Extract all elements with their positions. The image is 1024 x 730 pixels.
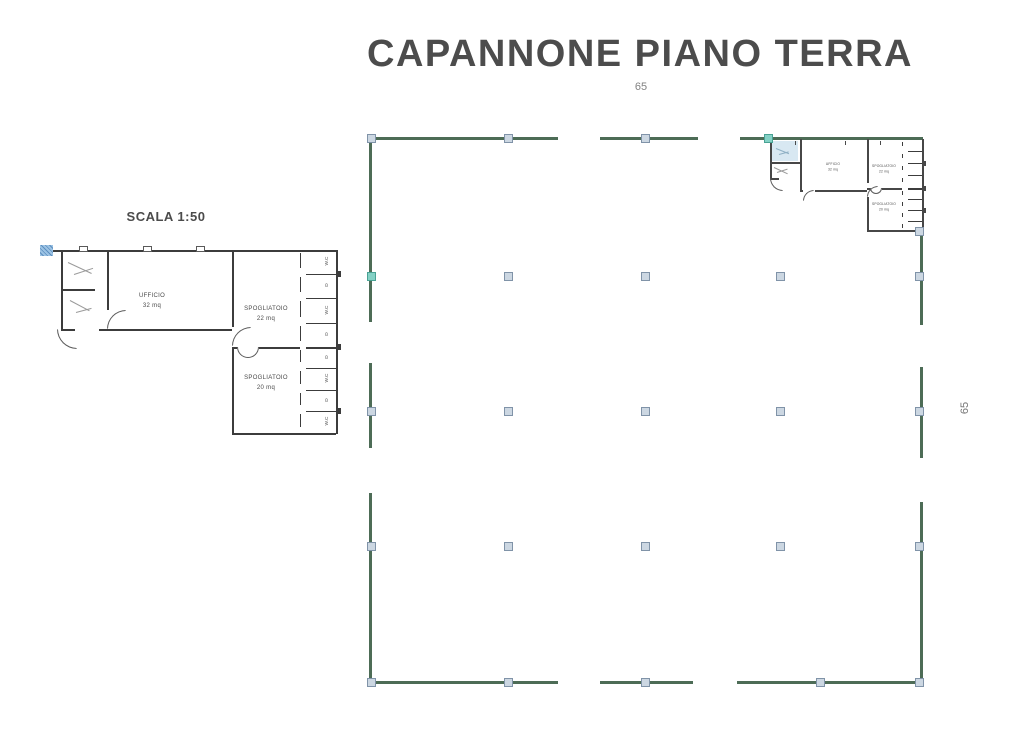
wc-stall-divider [908, 151, 922, 152]
door-swing-arc [57, 329, 77, 349]
wc-stall-door-wall [300, 253, 301, 268]
window-marker [196, 246, 205, 252]
warehouse-wall-segment [369, 681, 558, 684]
annex-wall-segment [867, 139, 869, 183]
annex-label-spogliatoio-20: SPOGLIATOIO 20 mq [868, 202, 901, 213]
wc-stall-divider [306, 368, 336, 369]
column-marker [915, 678, 924, 687]
room-label-spogliatoio-20: SPOGLIATOIO 20 mq [231, 373, 301, 393]
column-marker [367, 134, 376, 143]
column-marker [915, 227, 924, 236]
door-swing-arc [107, 310, 126, 329]
wc-stall-door-wall [300, 371, 301, 384]
wc-stall-divider [306, 390, 336, 391]
wc-stall-divider [306, 411, 336, 412]
column-marker [641, 678, 650, 687]
window-marker [143, 246, 152, 252]
detail-wall-segment [61, 250, 63, 330]
wc-stall-door-wall [902, 213, 903, 217]
wall-tick [845, 141, 846, 145]
pilaster [336, 344, 341, 350]
column-marker [915, 407, 924, 416]
column-marker [367, 407, 376, 416]
annex-wall-segment [815, 190, 867, 192]
detail-wall-segment [259, 347, 300, 349]
wc-stall-label: W.C [325, 256, 330, 266]
room-label-ufficio: UFFICIO 32 mq [117, 291, 187, 311]
room-area: 32 mq [117, 301, 187, 311]
wc-stall-door-wall [300, 277, 301, 292]
page-title: CAPANNONE PIANO TERRA [340, 33, 940, 76]
wc-stall-door-wall [300, 350, 301, 362]
column-marker [367, 678, 376, 687]
pilaster [922, 161, 926, 166]
detail-wall-segment [232, 433, 336, 435]
wc-stall-door-wall [902, 191, 903, 195]
wall-tick [880, 141, 881, 145]
wc-stall-divider [908, 188, 922, 190]
wc-stall-door-wall [902, 142, 903, 146]
column-marker [504, 678, 513, 687]
wc-stall-door-wall [902, 178, 903, 182]
annex-label-spogliatoio-22: SPOGLIATOIO 22 mq [868, 164, 901, 175]
door-swing-arc [237, 347, 259, 358]
wc-stall-divider [306, 298, 336, 299]
warehouse-wall-segment [369, 493, 372, 684]
wc-stall-divider [306, 274, 336, 275]
wc-stall-door-wall [300, 326, 301, 341]
annex-wall-segment [922, 139, 924, 230]
wc-stall-label: D [325, 352, 330, 362]
column-marker [641, 407, 650, 416]
column-marker [764, 134, 773, 143]
room-name: SPOGLIATOIO [231, 373, 301, 383]
annex-wall-segment [770, 139, 772, 178]
wall-tick [795, 141, 796, 145]
room-name: UFFICIO [117, 291, 187, 301]
column-marker [504, 134, 513, 143]
room-name: SPOGLIATOIO [231, 304, 301, 314]
scan-mark-blue [40, 245, 53, 256]
room-area: 20 mq [868, 207, 901, 213]
pilaster [922, 186, 926, 191]
scale-label: SCALA 1:50 [116, 209, 216, 224]
door-swing-arc [803, 190, 814, 201]
column-marker [504, 272, 513, 281]
wc-stall-door-wall [300, 393, 301, 405]
wc-stall-label: D [325, 395, 330, 405]
wc-stall-door-wall [902, 166, 903, 170]
room-area: 20 mq [231, 383, 301, 393]
column-marker [776, 407, 785, 416]
column-marker [776, 272, 785, 281]
wc-stall-label: D [325, 280, 330, 290]
pilaster [336, 271, 341, 277]
detail-wall-segment [53, 250, 336, 252]
annex-wall-segment [800, 139, 802, 190]
wc-stall-divider [908, 199, 922, 200]
wc-stall-divider [908, 163, 922, 164]
annex-wall-segment [882, 188, 902, 190]
warehouse-wall-segment [369, 363, 372, 448]
door-swing-arc [770, 178, 783, 191]
annex-wall-segment [800, 190, 803, 192]
column-marker [641, 134, 650, 143]
wc-stall-label: W.C [325, 373, 330, 383]
window-marker [79, 246, 88, 252]
pilaster [336, 408, 341, 414]
room-area: 32 mq [817, 167, 850, 173]
detail-wall-segment [107, 250, 109, 310]
warehouse-wall-segment [369, 137, 558, 140]
annex-wall-segment [867, 197, 869, 230]
wc-stall-divider [908, 175, 922, 176]
room-area: 22 mq [231, 314, 301, 324]
page-number-side: 65 [959, 393, 971, 423]
warehouse-wall-segment [369, 137, 372, 322]
column-marker [915, 272, 924, 281]
wc-stall-divider [908, 210, 922, 211]
detail-wall-segment [61, 289, 95, 291]
pilaster [922, 208, 926, 213]
column-marker [504, 542, 513, 551]
wc-stall-door-wall [300, 301, 301, 317]
column-marker [641, 272, 650, 281]
detail-wall-segment [232, 250, 234, 327]
annex-wall-segment [770, 162, 800, 164]
column-marker [367, 272, 376, 281]
detail-wall-segment [99, 329, 232, 331]
wc-stall-label: W.C [325, 305, 330, 315]
door-swing-arc [232, 327, 251, 346]
detail-plan-scala-150 [40, 205, 360, 450]
wc-stall-door-wall [300, 414, 301, 427]
wc-stall-label: D [325, 329, 330, 339]
room-area: 22 mq [868, 169, 901, 175]
wc-stall-label: W.C [325, 416, 330, 426]
detail-wall-segment [232, 347, 234, 433]
wc-stall-door-wall [902, 224, 903, 228]
wc-stall-divider [306, 347, 336, 349]
column-marker [776, 542, 785, 551]
detail-wall-segment [336, 250, 338, 434]
warehouse-wall-segment [920, 502, 923, 684]
column-marker [367, 542, 376, 551]
column-marker [816, 678, 825, 687]
wc-stall-door-wall [902, 154, 903, 158]
column-marker [915, 542, 924, 551]
annex-label-ufficio: UFFICIO 32 mq [817, 162, 850, 173]
column-marker [504, 407, 513, 416]
wc-stall-divider [908, 221, 922, 222]
room-label-spogliatoio-22: SPOGLIATOIO 22 mq [231, 304, 301, 324]
wc-stall-door-wall [902, 202, 903, 206]
page-number-top: 65 [626, 81, 656, 93]
column-marker [641, 542, 650, 551]
floor-plan-page: CAPANNONE PIANO TERRA 65 65 SCALA 1:50 U… [0, 0, 1024, 730]
warehouse-wall-segment [737, 681, 923, 684]
wc-stall-divider [306, 323, 336, 324]
